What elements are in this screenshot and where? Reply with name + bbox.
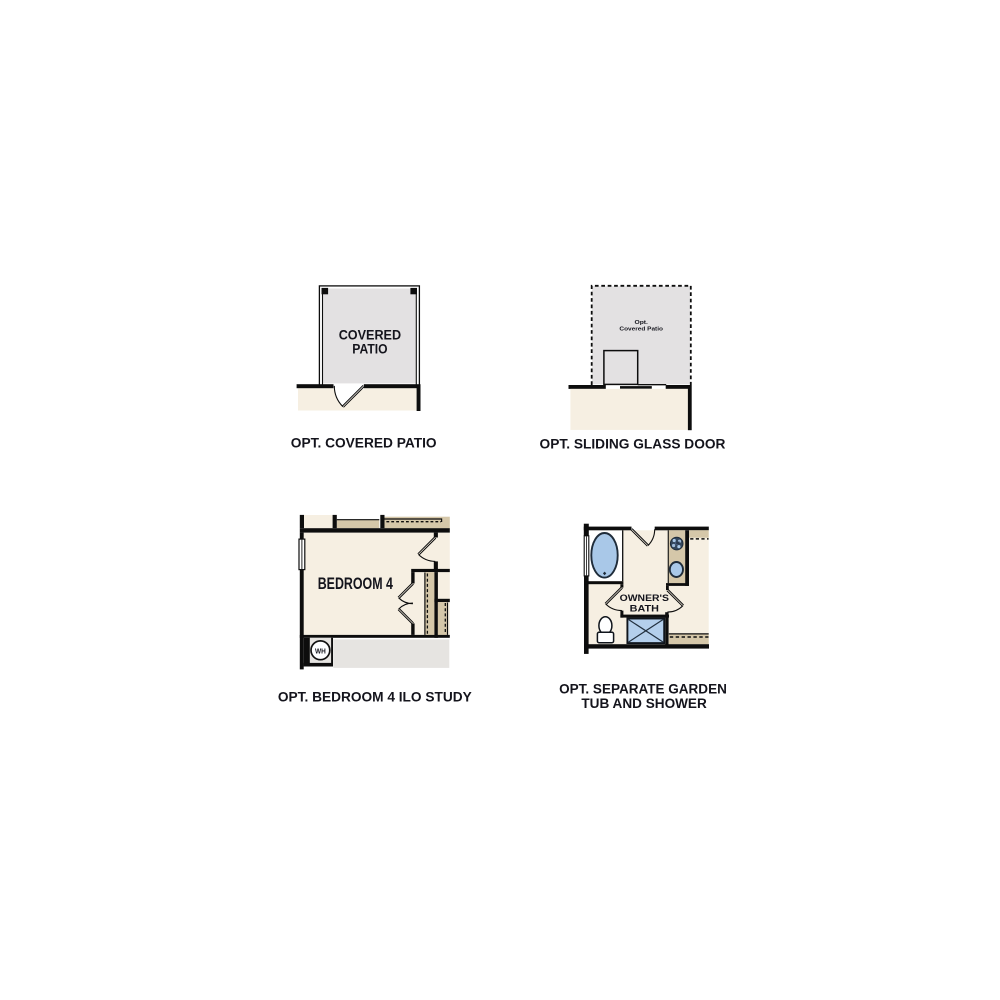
svg-text:BATH: BATH bbox=[630, 603, 659, 613]
svg-text:OPT. COVERED PATIO: OPT. COVERED PATIO bbox=[291, 435, 437, 451]
svg-text:Opt.: Opt. bbox=[635, 320, 649, 326]
svg-text:Covered Patio: Covered Patio bbox=[619, 327, 663, 333]
svg-text:PATIO: PATIO bbox=[352, 341, 387, 357]
svg-text:TUB AND SHOWER: TUB AND SHOWER bbox=[581, 696, 706, 712]
svg-text:WH: WH bbox=[315, 648, 326, 655]
svg-text:OPT. BEDROOM 4 ILO STUDY: OPT. BEDROOM 4 ILO STUDY bbox=[278, 689, 472, 705]
svg-text:BEDROOM 4: BEDROOM 4 bbox=[318, 574, 394, 593]
svg-text:OWNER'S: OWNER'S bbox=[620, 593, 669, 603]
svg-text:OPT. SLIDING GLASS DOOR: OPT. SLIDING GLASS DOOR bbox=[540, 436, 726, 452]
